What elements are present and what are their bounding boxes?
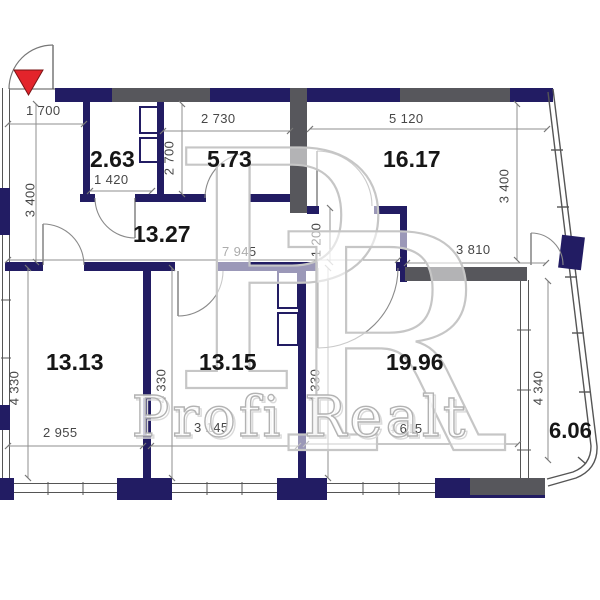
wall-segment (139, 106, 159, 134)
wall-segment (277, 478, 327, 500)
dim-room-a-width: 1 420 (94, 172, 129, 187)
wall-segment (5, 262, 43, 271)
wall-segment (80, 194, 95, 202)
dim-room-f-width: 4 615 (388, 421, 423, 436)
entrance-door (9, 45, 55, 89)
dim-hallway-length: 7 945 (222, 244, 257, 259)
slant-wall-block (558, 235, 585, 271)
wall-segment (84, 262, 175, 271)
entrance-marker-icon (14, 70, 43, 95)
wall-segment (55, 88, 112, 102)
wall-segment (290, 88, 307, 213)
wall-segment (374, 206, 402, 214)
room-area-hallway: 13.27 (133, 221, 191, 248)
dim-room-c-width: 5 120 (389, 111, 424, 126)
wall-segment (298, 271, 306, 478)
wall-segment (172, 483, 277, 493)
dim-room-b-width: 2 730 (201, 111, 236, 126)
dim-room-e-width: 3 145 (194, 420, 229, 435)
room-area-balcony: 6.06 (549, 418, 592, 444)
wall-segment (327, 483, 435, 493)
dim-room-a-height: 2 700 (162, 141, 177, 176)
floor-plan: 1 700 2 730 5 120 1 420 7 945 3 810 2 95… (0, 0, 600, 600)
dim-room-f-top-width: 3 810 (456, 242, 491, 257)
wall-segment (112, 88, 210, 102)
room-area-e: 13.15 (199, 349, 257, 376)
dim-balcony-height: 4 340 (531, 371, 546, 406)
dim-room-e-height-left: 4 330 (154, 369, 169, 404)
wall-segment (143, 271, 151, 478)
wall-segment (470, 478, 545, 495)
watermark-monogram-r: R (272, 172, 506, 521)
wall-segment (139, 137, 159, 163)
dim-left-wall-height: 3 400 (23, 183, 38, 218)
wall-segment (0, 478, 14, 500)
dim-room-d-height: 4 330 (7, 371, 22, 406)
room-area-f: 19.96 (386, 349, 444, 376)
dim-entrance-width: 1 700 (26, 103, 61, 118)
room-area-b: 5.73 (207, 146, 252, 173)
wall-segment (83, 102, 90, 195)
wall-segment (307, 206, 319, 214)
wall-segment (277, 312, 299, 346)
room-area-c: 16.17 (383, 146, 441, 173)
dim-room-e-height-right: 4 330 (308, 369, 323, 404)
dim-room-c-height: 3 400 (497, 169, 512, 204)
wall-segment (14, 483, 117, 493)
wall-segment (277, 271, 299, 309)
dim-corridor-width: 1 200 (309, 223, 324, 258)
wall-segment (405, 267, 527, 281)
wall-segment (210, 88, 290, 102)
dim-room-d-width: 2 955 (43, 425, 78, 440)
wall-segment (0, 188, 10, 235)
wall-segment (117, 478, 172, 500)
room-area-a: 2.63 (90, 146, 135, 173)
window-ticks (1, 300, 531, 495)
wall-segment (510, 88, 553, 102)
wall-segment (0, 405, 10, 430)
wall-segment (307, 88, 400, 102)
room-area-d: 13.13 (46, 349, 104, 376)
wall-segment (218, 262, 318, 271)
wall-segment (158, 194, 206, 202)
wall-segment (400, 88, 510, 102)
wall-segment (520, 280, 529, 478)
